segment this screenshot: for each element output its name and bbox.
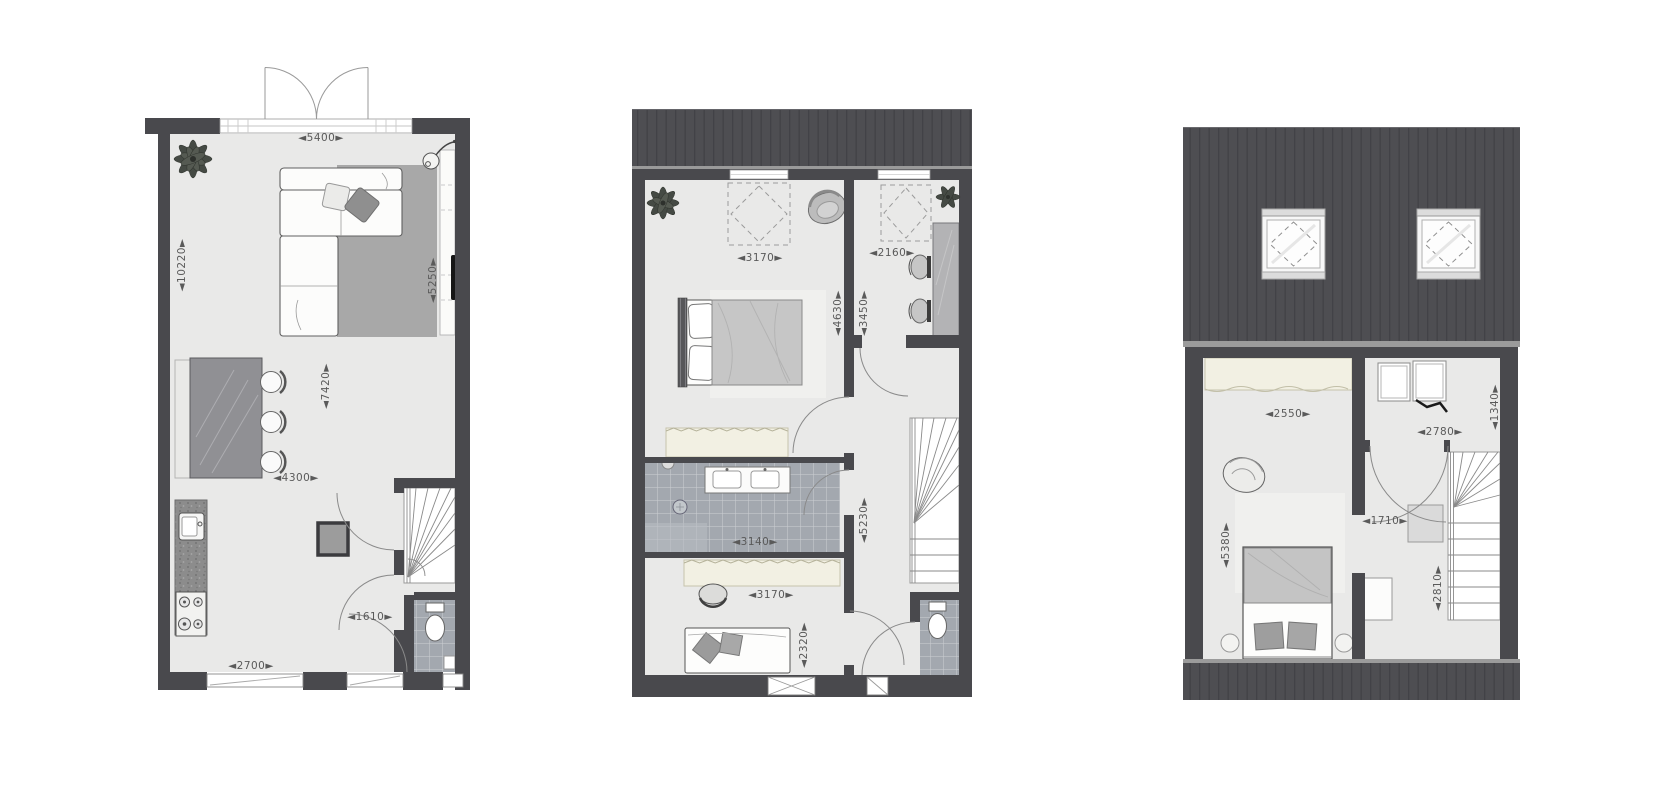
dimension-label: ◄2780► [1417, 426, 1463, 438]
first-floor-plan: ◄3170► ◄2160► ◄4630► ◄3450► ◄3140► ◄5230… [618, 45, 978, 697]
dimension-label: ◄2810► [1432, 565, 1444, 611]
sideboard [440, 150, 455, 335]
wardrobe-desk [684, 560, 840, 586]
dimension-label: ◄7420► [320, 363, 332, 409]
bench [175, 360, 191, 478]
bedside-stool [1335, 634, 1353, 652]
dimension-label: ◄4630► [832, 290, 844, 336]
roof-skylight [1262, 209, 1325, 279]
dimension-label: ◄10220► [176, 238, 188, 291]
toilet [426, 603, 445, 641]
wardrobe [1205, 358, 1352, 392]
dimension-label: ◄3170► [748, 589, 794, 601]
wc-room [414, 600, 455, 672]
french-doors [265, 68, 368, 120]
shaft [318, 523, 348, 555]
desk [933, 223, 959, 341]
dimension-label: ◄1610► [347, 611, 393, 623]
dimension-label: ◄1710► [1362, 515, 1408, 527]
plant-icon [174, 140, 212, 178]
dimension-label: ◄3170► [737, 252, 783, 264]
front-window [220, 119, 412, 133]
dimension-label: ◄5230► [858, 497, 870, 543]
dimension-label: ◄4300► [273, 472, 319, 484]
wc-sink [444, 656, 455, 669]
dining-table [190, 358, 262, 478]
plant-icon [647, 187, 679, 219]
bedside-stool [1221, 634, 1239, 652]
dimension-label: ◄3450► [858, 290, 870, 336]
dimension-label: ◄2700► [228, 660, 274, 672]
floor-plan-sheet: ◄5400► ◄10220► ◄5250► ◄7420► ◄4300► ◄161… [0, 0, 1680, 803]
dimension-label: ◄3140► [732, 536, 778, 548]
single-bed [685, 628, 790, 673]
dimension-label: ◄5380► [1220, 522, 1232, 568]
dimension-label: ◄2160► [869, 247, 915, 259]
stairs [1448, 452, 1500, 620]
desk-chair [699, 584, 727, 607]
toilet [929, 614, 947, 639]
attic-floor-plan: ◄2550► ◄2780► ◄1340► ◄1710► ◄5380► ◄2810… [1180, 45, 1525, 700]
roof [632, 109, 972, 169]
toilet-room [920, 600, 959, 675]
double-bed [678, 298, 802, 387]
kitchen-counter [175, 500, 207, 636]
bathroom-vanity [705, 467, 790, 493]
dimension-label: ◄5400► [298, 132, 344, 144]
stairs [910, 418, 959, 583]
wardrobe [666, 428, 788, 457]
dimension-label: ◄1340► [1489, 384, 1501, 430]
dimension-label: ◄5250► [427, 257, 439, 303]
stairs [404, 488, 455, 583]
lower-roof [1183, 659, 1520, 700]
sink [179, 513, 204, 540]
dimension-label: ◄2550► [1265, 408, 1311, 420]
dimension-label: ◄2320► [798, 622, 810, 668]
ground-floor-plan: ◄5400► ◄10220► ◄5250► ◄7420► ◄4300► ◄161… [130, 45, 475, 695]
roof-skylight [1417, 209, 1480, 279]
stove [176, 592, 206, 636]
